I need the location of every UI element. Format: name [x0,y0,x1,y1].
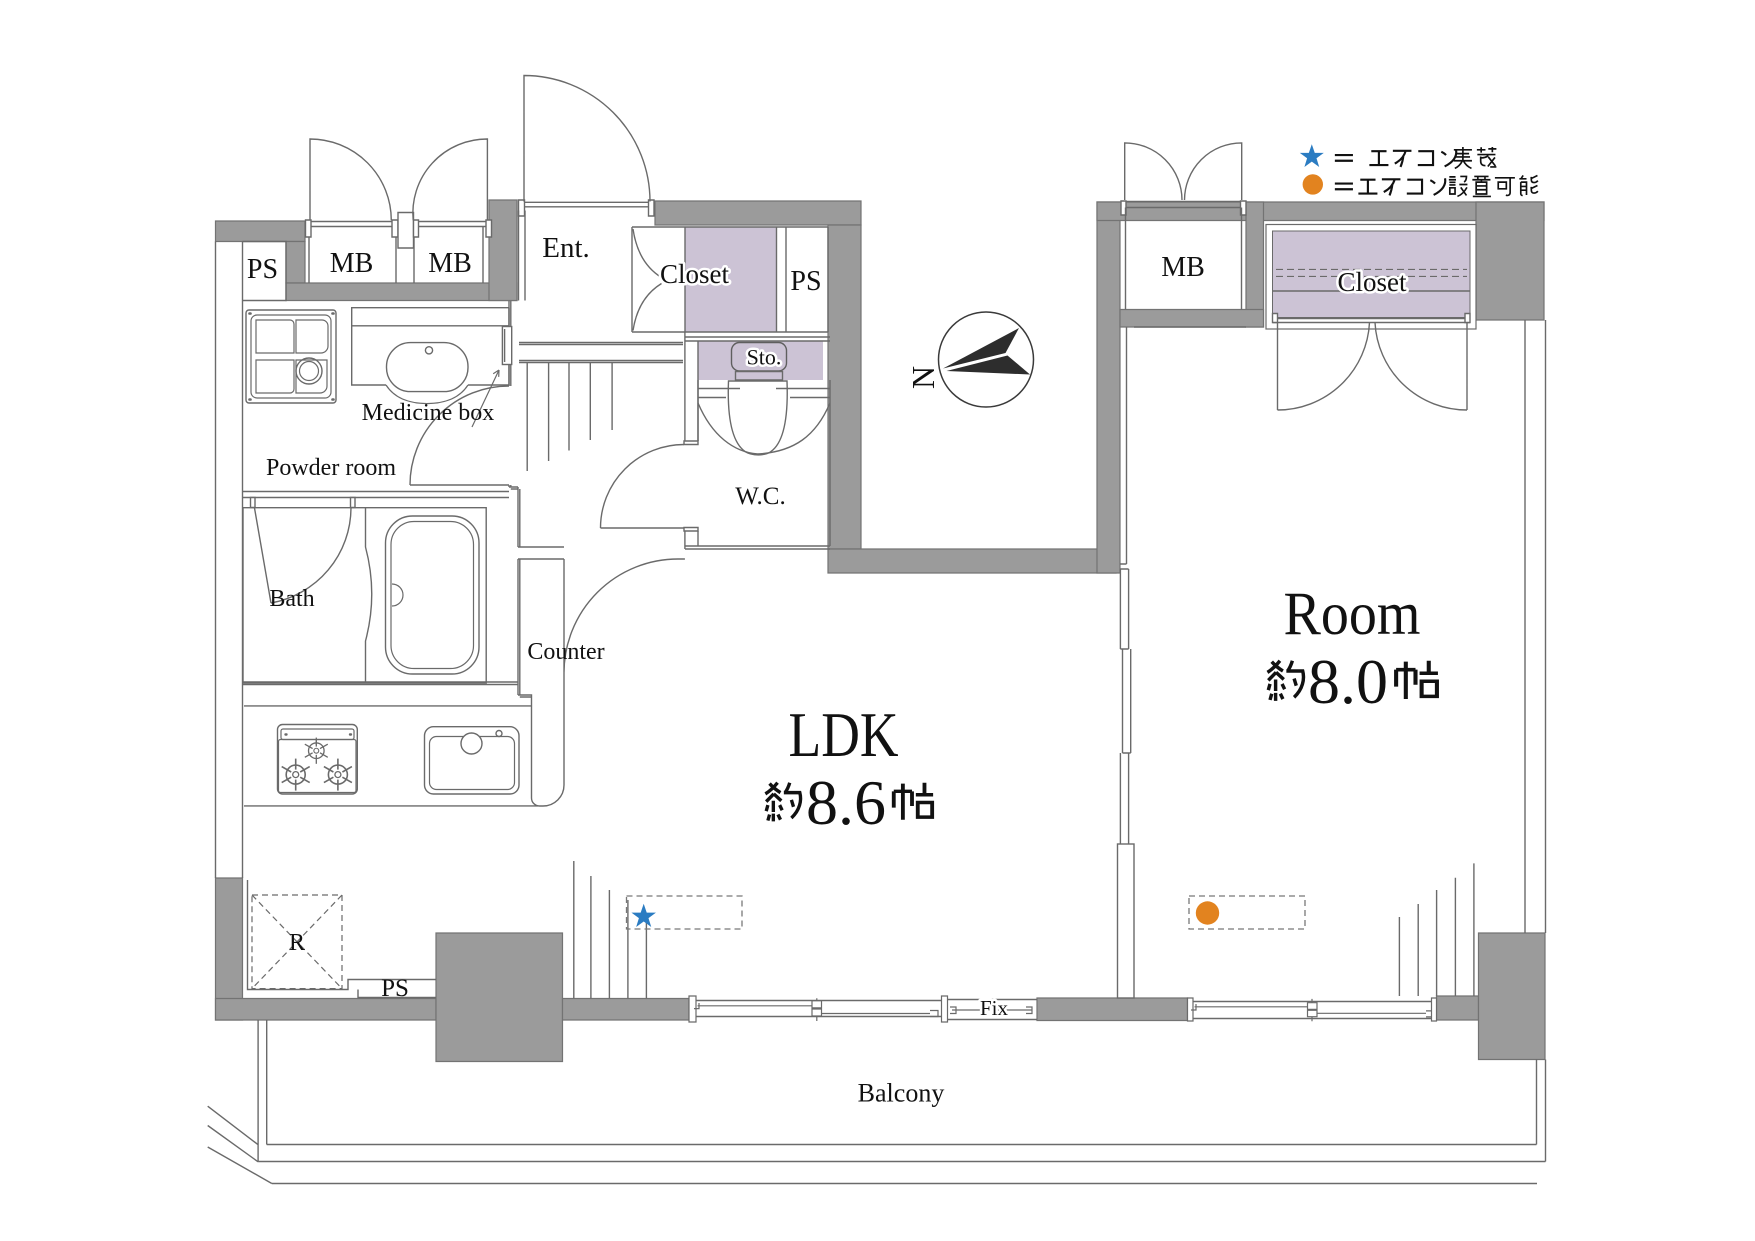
svg-text:Counter: Counter [527,639,604,665]
svg-text:Ent.: Ent. [542,232,590,264]
svg-text:MB: MB [428,248,472,279]
svg-text:Bath: Bath [269,586,314,612]
svg-text:N: N [905,366,941,389]
svg-text:LDK: LDK [789,699,899,770]
svg-text:Room: Room [1284,581,1421,648]
svg-text:Fix: Fix [980,996,1009,1020]
svg-text:PS: PS [790,266,821,297]
svg-text:R: R [289,930,305,956]
svg-text:Balcony: Balcony [858,1079,945,1108]
svg-text:8.6: 8.6 [806,767,886,838]
svg-text:8.0: 8.0 [1308,646,1388,717]
svg-text:Closet: Closet [1337,267,1407,297]
svg-text:Powder room: Powder room [266,455,396,481]
svg-text:Medicine box: Medicine box [362,400,495,426]
svg-text:PS: PS [247,254,278,285]
svg-text:Closet: Closet [660,259,730,289]
svg-text:MB: MB [330,248,374,279]
svg-text:PS: PS [381,975,409,1002]
svg-text:MB: MB [1161,252,1205,283]
svg-text:Sto.: Sto. [747,345,782,370]
svg-text:W.C.: W.C. [735,483,785,510]
